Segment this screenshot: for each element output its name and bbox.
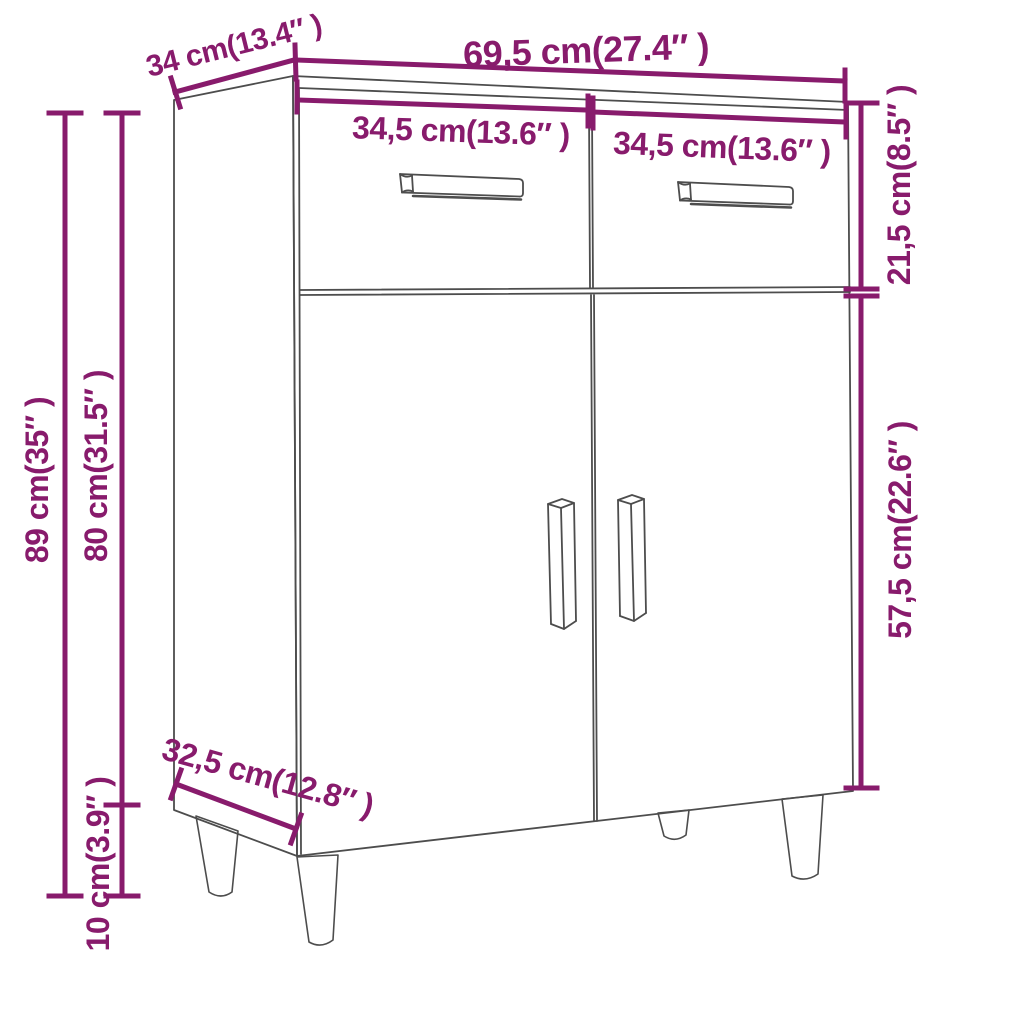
cabinet-legs [196,795,823,945]
label-overall-height: 89 cm(35″ ) [19,397,55,563]
label-drawer-section-height: 21,5 cm(8.5″ ) [881,85,917,285]
label-bottom-depth: 32,5 cm(12.8″ ) [158,731,377,824]
leg-front-left [297,855,338,945]
label-body-height: 80 cm(31.5″ ) [78,370,114,562]
label-left-drawer-width: 34,5 cm(13.6″ ) [352,109,571,153]
label-right-drawer-width: 34,5 cm(13.6″ ) [612,125,831,170]
cabinet-front-face [293,76,853,856]
leg-front-right [782,795,823,879]
label-leg-height: 10 cm(3.9″ ) [80,777,116,952]
drawer-center-gap [589,110,593,288]
leg-back-right [658,810,689,839]
label-overall-width: 69,5 cm(27.4″ ) [462,25,709,75]
left-door-handle [548,499,576,629]
door-center-gap [591,295,597,821]
drawer-door-divider [300,287,850,295]
product-dimension-diagram: 69,5 cm(27.4″ ) 34 cm(13.4″ ) 34,5 cm(13… [0,0,1024,1024]
dim-drawer-section-height [846,103,877,289]
label-door-section-height: 57,5 cm(22.6″ ) [882,421,918,639]
cabinet-line-art [174,76,853,945]
right-drawer-handle [678,182,793,208]
front-inner-left-edge [299,88,301,854]
left-drawer-handle [400,174,523,200]
right-door-handle [618,495,646,621]
leg-back-left [196,816,238,896]
